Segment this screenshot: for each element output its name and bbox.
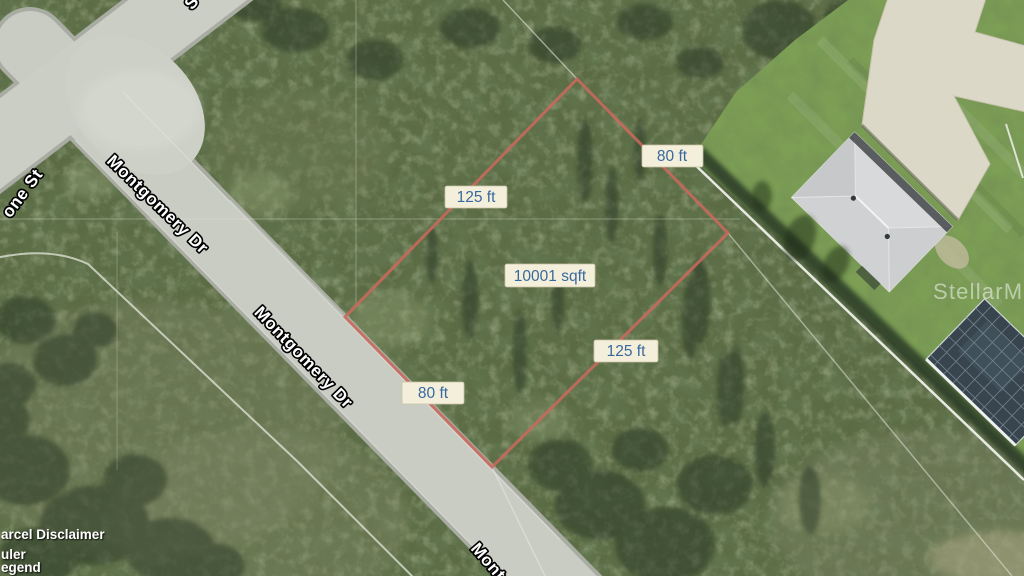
dimension-label-nw: 125 ft [445,186,507,208]
dimension-label-se: 125 ft [594,340,658,362]
link-parcel-disclaimer[interactable]: arcel Disclaimer [1,527,105,542]
dimension-label-sw: 80 ft [402,382,464,404]
dimension-label-text: 125 ft [607,343,646,360]
watermark: StellarMLS [933,279,1024,304]
link-legend[interactable]: egend [1,560,41,575]
map-viewport[interactable]: 125 ft 80 ft 10001 sqft 125 ft 80 ft Mon… [0,0,1024,576]
dimension-label-text: 125 ft [457,189,496,206]
area-label-text: 10001 sqft [514,268,587,285]
satellite-map[interactable]: 125 ft 80 ft 10001 sqft 125 ft 80 ft Mon… [0,0,1024,576]
dimension-label-text: 80 ft [418,385,449,402]
dimension-label-ne: 80 ft [642,145,703,167]
dimension-label-text: 80 ft [657,148,688,165]
area-label: 10001 sqft [505,264,595,287]
